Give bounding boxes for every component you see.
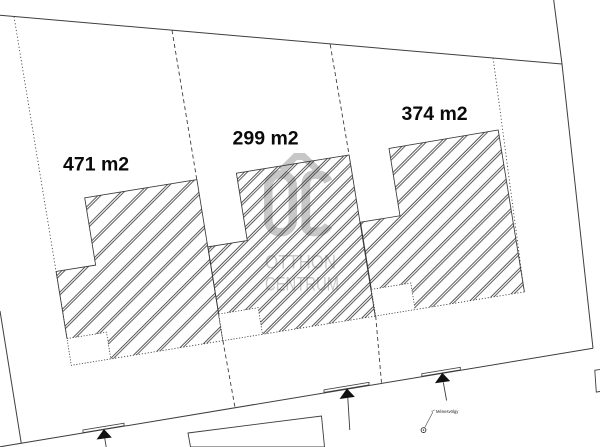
svg-text:374 m2: 374 m2 — [402, 103, 468, 125]
svg-text:Ménesvölgy: Ménesvölgy — [436, 409, 459, 414]
svg-text:299 m2: 299 m2 — [233, 128, 299, 150]
svg-text:471 m2: 471 m2 — [63, 154, 129, 176]
